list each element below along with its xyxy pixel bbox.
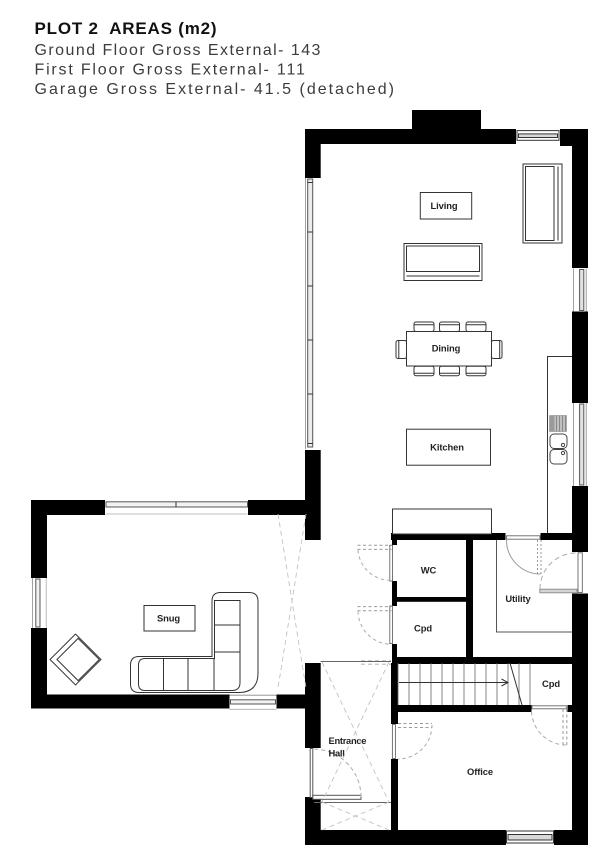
svg-text:Office: Office bbox=[467, 766, 493, 777]
svg-text:Snug: Snug bbox=[157, 613, 180, 624]
svg-text:Cpd: Cpd bbox=[414, 623, 432, 634]
svg-text:Utility: Utility bbox=[505, 593, 531, 604]
svg-text:Dining: Dining bbox=[432, 343, 461, 354]
svg-text:WC: WC bbox=[421, 565, 437, 576]
svg-text:Kitchen: Kitchen bbox=[430, 442, 464, 453]
svg-text:Cpd: Cpd bbox=[542, 678, 560, 689]
svg-text:Living: Living bbox=[430, 200, 457, 211]
svg-text:PLOT 2 AREAS (m2): PLOT 2 AREAS (m2) bbox=[35, 19, 218, 38]
svg-text:First Floor Gross External- 11: First Floor Gross External- 111 bbox=[35, 62, 307, 79]
svg-text:Hall: Hall bbox=[329, 748, 345, 759]
svg-text:Garage Gross External- 41.5 (d: Garage Gross External- 41.5 (detached) bbox=[35, 81, 396, 98]
svg-text:Entrance: Entrance bbox=[329, 735, 367, 746]
svg-text:Ground Floor Gross External- 1: Ground Floor Gross External- 143 bbox=[35, 42, 322, 59]
